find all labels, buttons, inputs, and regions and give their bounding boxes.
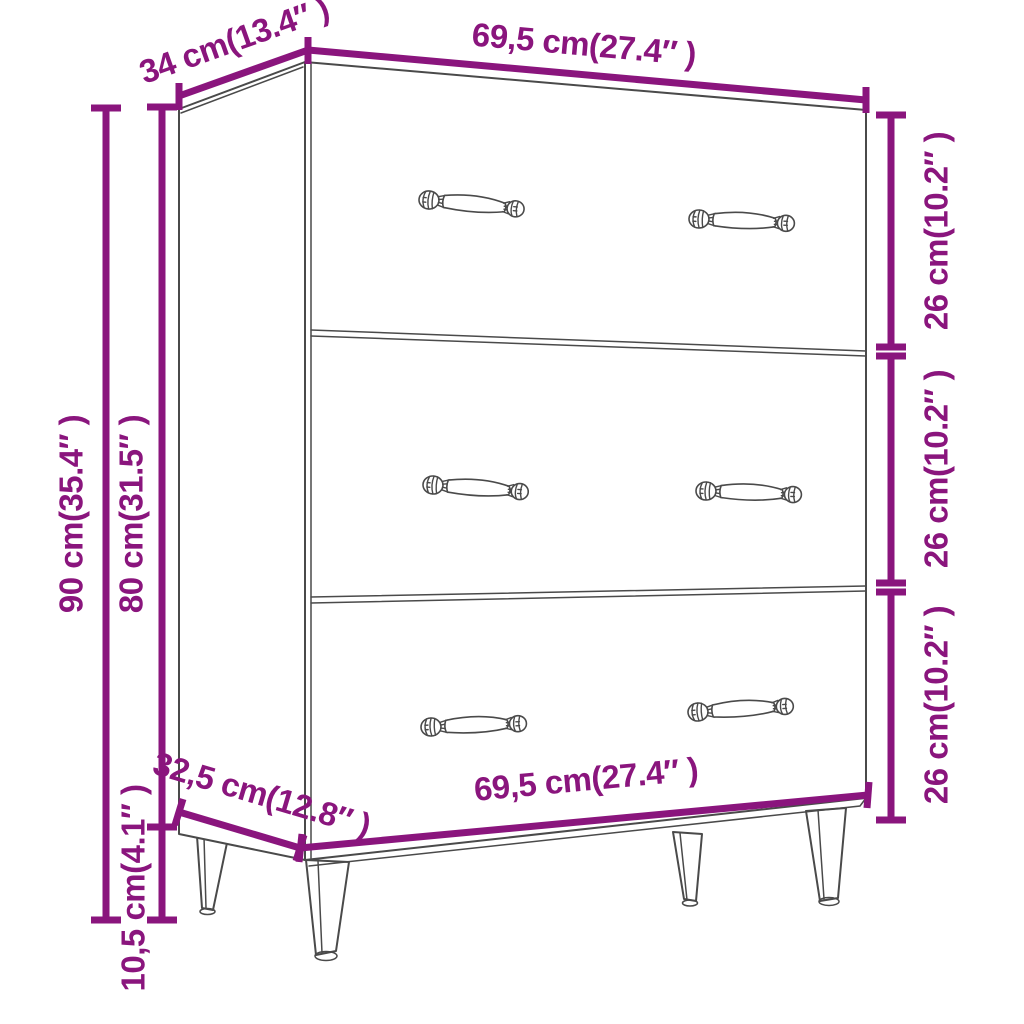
dimension-diagram-page: 34 cm(13.4″ ) 69,5 cm(27.4″ ) 90 cm(35.4…: [0, 0, 1024, 1024]
label-drawer-middle: 26 cm(10.2″ ): [918, 370, 955, 568]
dim-line-height-body: [147, 107, 177, 827]
label-drawer-bottom: 26 cm(10.2″ ): [918, 606, 955, 804]
label-height-body: 80 cm(31.5″ ): [113, 415, 150, 613]
leg-front-right: [806, 808, 846, 906]
label-height-total: 90 cm(35.4″ ): [53, 415, 90, 613]
dim-line-height-legs: [147, 827, 177, 920]
dim-line-drawer-top: [876, 115, 906, 347]
label-drawer-top: 26 cm(10.2″ ): [918, 132, 955, 330]
sideboard-dimension-diagram: 34 cm(13.4″ ) 69,5 cm(27.4″ ) 90 cm(35.4…: [0, 0, 1024, 1024]
leg-back-left: [197, 836, 228, 915]
cabinet-body: [179, 62, 866, 866]
label-width-top: 69,5 cm(27.4″ ): [470, 16, 697, 73]
label-height-legs: 10,5 cm(4.1″ ): [115, 785, 152, 992]
dim-line-drawer-middle: [876, 356, 906, 583]
leg-front-left: [306, 860, 349, 961]
cabinet-side-panel: [179, 62, 305, 860]
leg-back-right: [673, 832, 702, 906]
dim-line-drawer-bottom: [876, 592, 906, 820]
cabinet-front-face: [305, 62, 866, 860]
